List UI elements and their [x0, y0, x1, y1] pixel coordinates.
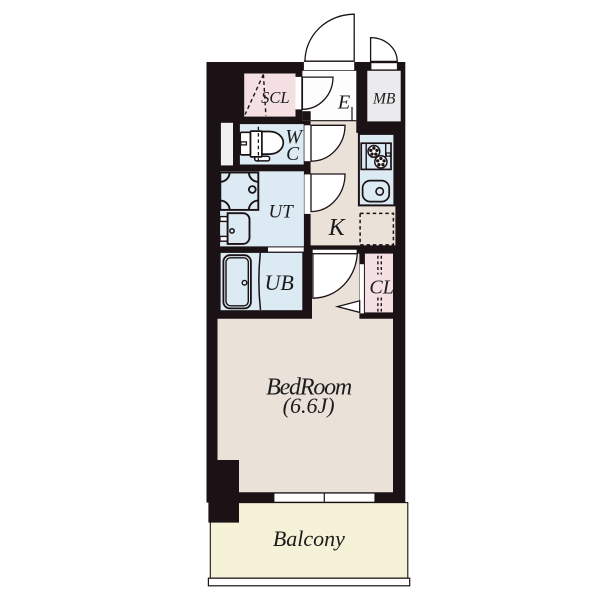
svg-text:(6.6J): (6.6J): [283, 393, 335, 418]
svg-text:SCL: SCL: [261, 88, 289, 107]
svg-text:K: K: [328, 215, 347, 241]
svg-text:Balcony: Balcony: [273, 526, 345, 551]
svg-text:UT: UT: [269, 201, 295, 222]
svg-text:CL: CL: [369, 276, 393, 298]
svg-text:C: C: [286, 144, 300, 165]
svg-text:MB: MB: [372, 90, 396, 107]
svg-text:UB: UB: [265, 270, 294, 295]
svg-text:E: E: [337, 92, 351, 114]
